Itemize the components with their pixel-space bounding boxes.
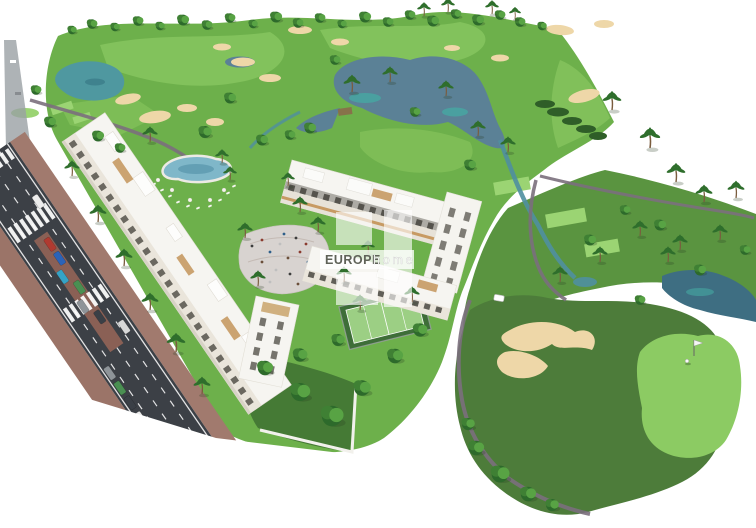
lake-teal-accent [442, 108, 468, 117]
palm-tree [727, 181, 745, 202]
parasol [188, 198, 192, 202]
hedge [547, 108, 569, 117]
person [289, 273, 292, 276]
person [297, 283, 300, 286]
person [305, 243, 308, 246]
hedge [535, 100, 555, 108]
tree [225, 13, 237, 23]
hedge [562, 117, 582, 125]
parasol [170, 188, 174, 192]
logo-block [336, 212, 372, 245]
hedge [589, 132, 607, 140]
tree [31, 85, 43, 95]
logo-text-secondary: home [373, 253, 415, 267]
person [269, 281, 272, 284]
lake-teal-accent [85, 79, 105, 86]
logo-block [336, 272, 378, 305]
person [251, 245, 254, 248]
bunker [231, 58, 255, 67]
stream-pool [573, 277, 597, 287]
person [261, 239, 264, 242]
palm-tree [639, 127, 661, 152]
bunker [206, 118, 224, 126]
masterplan-render: EUROPE home [0, 0, 756, 528]
lake-teal-accent [686, 288, 714, 296]
bunker [259, 74, 281, 82]
golfer-shadow [685, 363, 691, 365]
distant-car [10, 60, 16, 63]
parasol [222, 188, 226, 192]
golfer [685, 359, 689, 363]
person [299, 251, 302, 254]
person [269, 251, 272, 254]
pool-deep-water [178, 164, 214, 174]
parasol [156, 178, 160, 182]
person [283, 233, 286, 236]
person [295, 237, 298, 240]
bunker [177, 104, 197, 112]
palm-tree [666, 163, 686, 186]
bunker [594, 20, 614, 28]
bunker [491, 55, 509, 62]
distant-car [15, 92, 21, 95]
putting-green [637, 334, 741, 458]
bunker [213, 44, 231, 51]
person [275, 269, 278, 272]
hedge [576, 125, 596, 133]
person [279, 243, 282, 246]
bunker [444, 45, 460, 51]
person [287, 257, 290, 260]
golf-cart [494, 294, 505, 302]
person [261, 261, 264, 264]
render-canvas: EUROPE home [0, 0, 756, 528]
bunker [331, 39, 349, 46]
parasol [208, 198, 212, 202]
